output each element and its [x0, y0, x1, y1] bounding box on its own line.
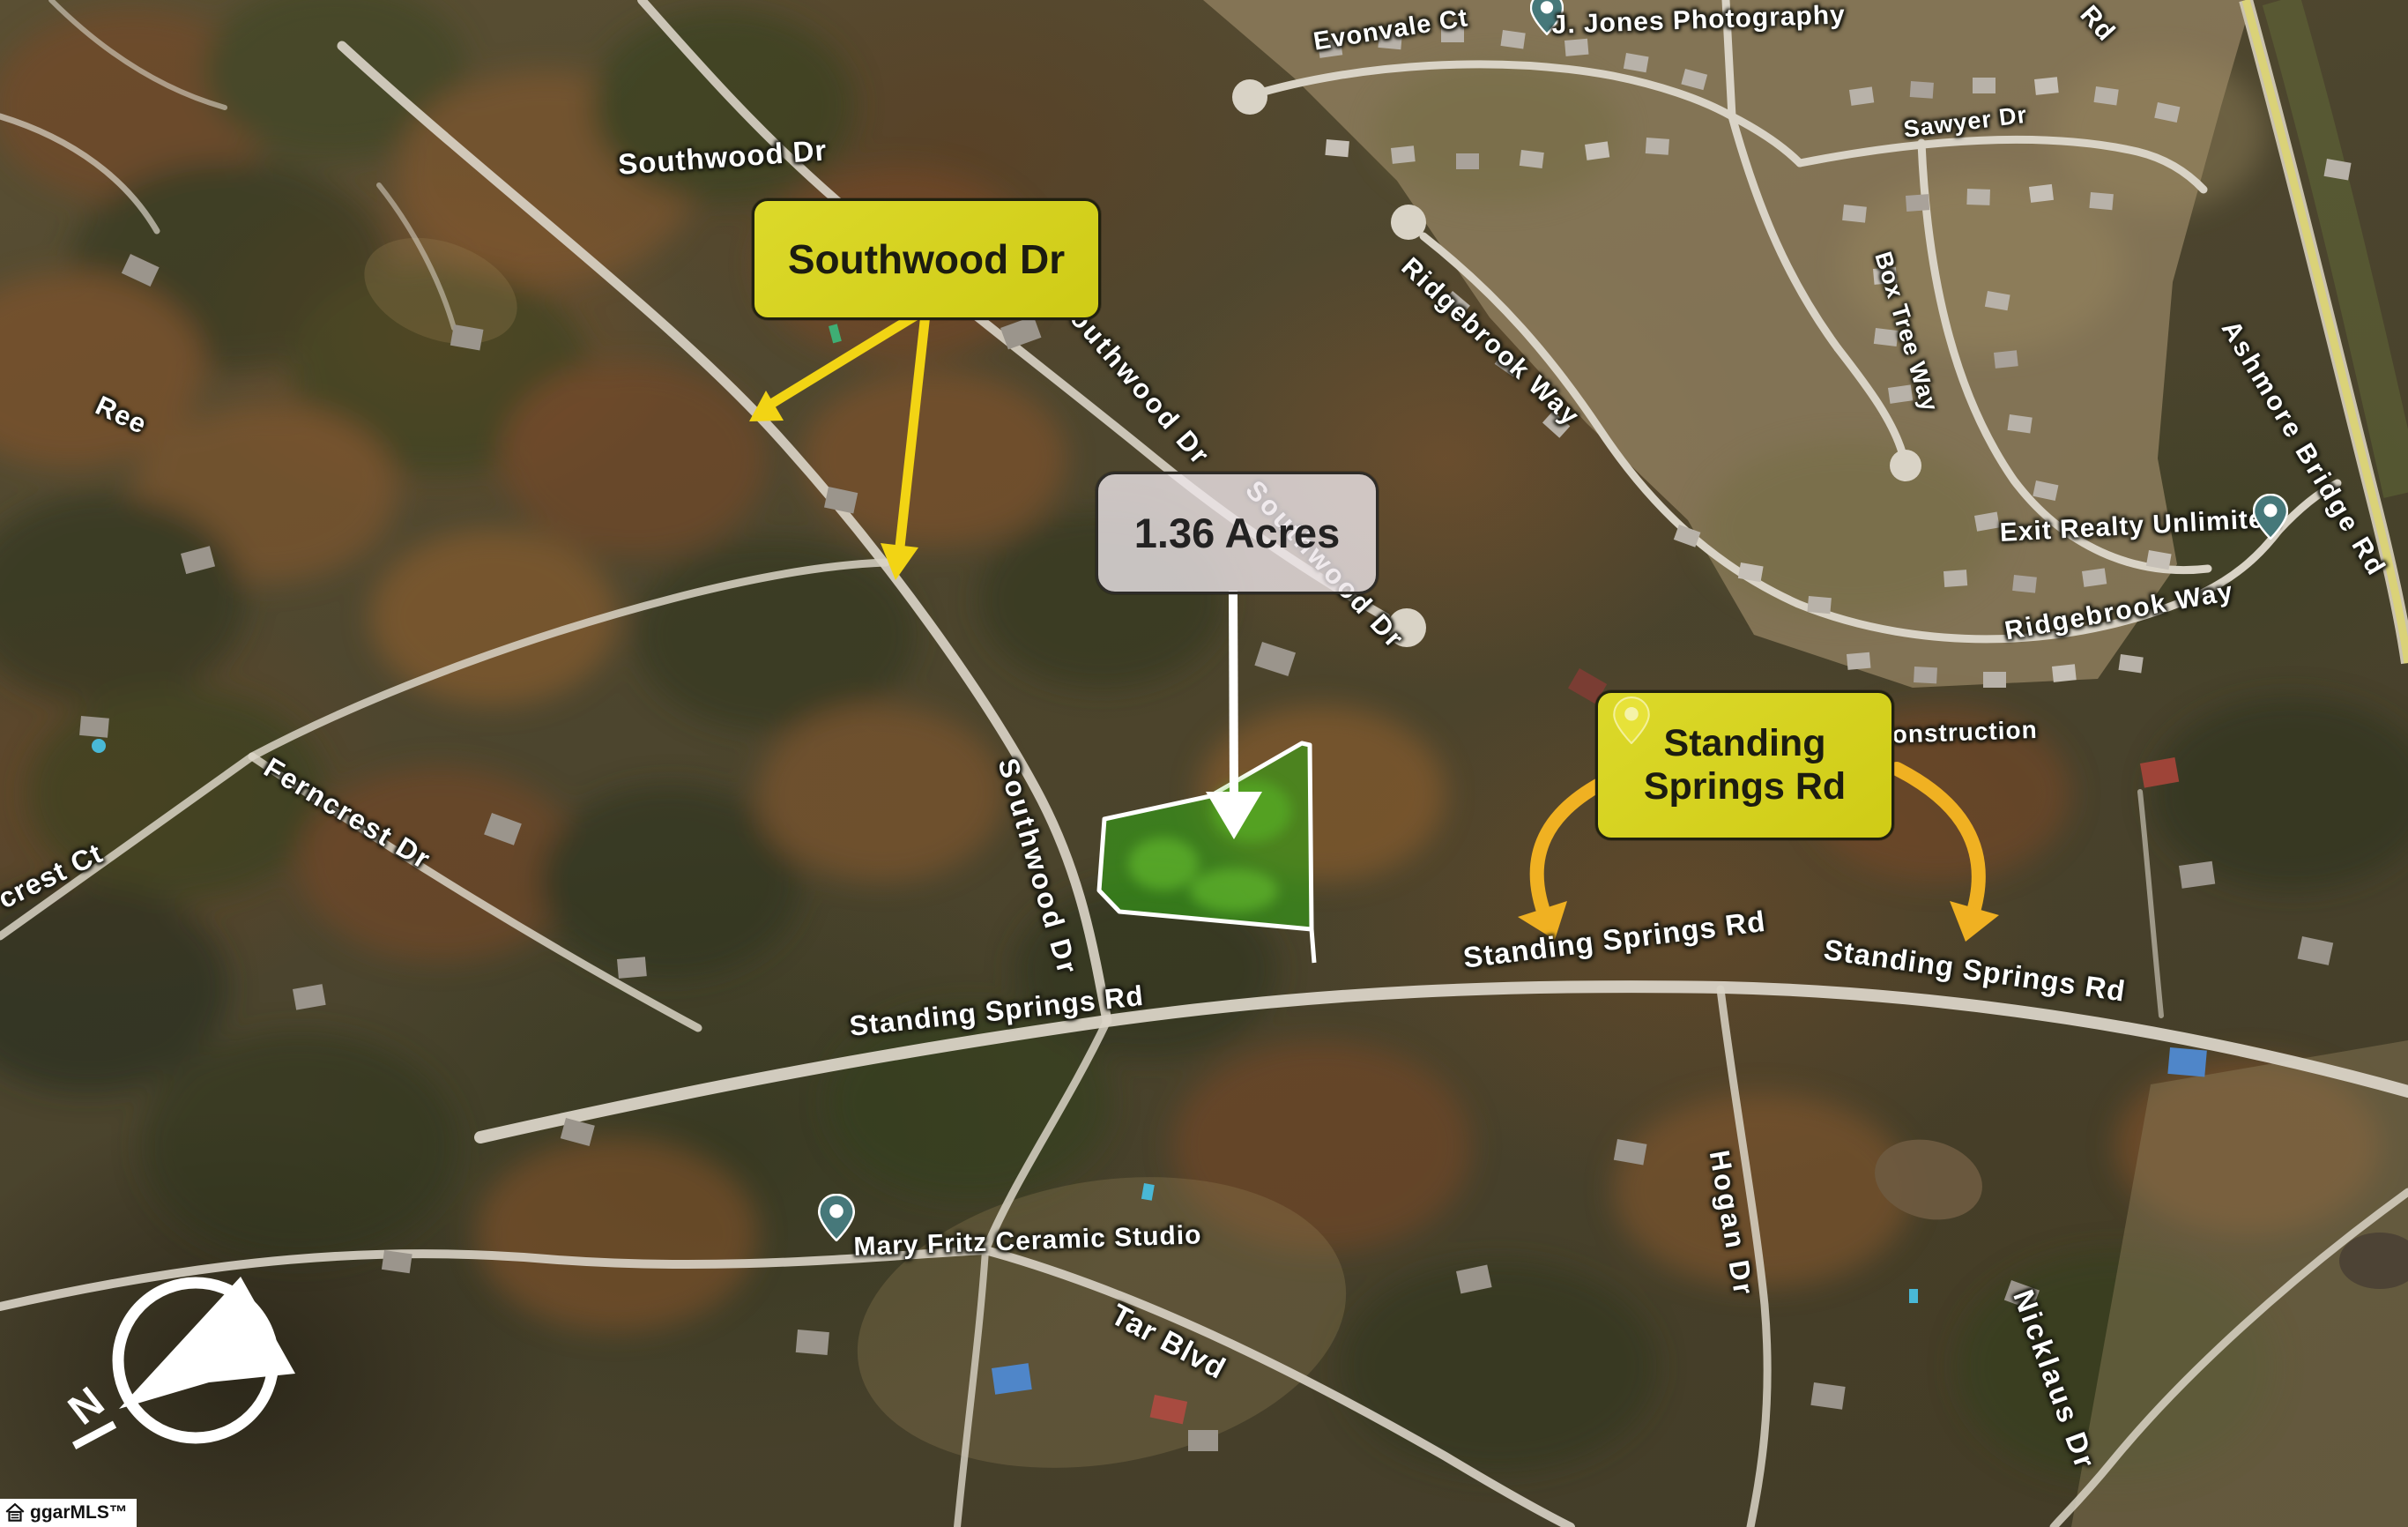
- watermark-text: ggarMLS™: [30, 1502, 128, 1523]
- compass-north-icon: N: [60, 1277, 295, 1449]
- map-pin-icon: [818, 1194, 855, 1241]
- standing-callout-line1: Standing: [1664, 722, 1826, 765]
- southwood-callout-label: Southwood Dr: [788, 235, 1065, 283]
- mls-house-logo-icon: [4, 1501, 26, 1524]
- map-pin-icon: [2253, 494, 2288, 540]
- map-pin-icon: [1613, 696, 1650, 744]
- acres-callout: 1.36 Acres: [1096, 472, 1379, 594]
- standing-callout-line2: Springs Rd: [1644, 765, 1846, 808]
- aerial-map-canvas: N: [0, 0, 2408, 1527]
- acres-callout-label: 1.36 Acres: [1134, 509, 1340, 557]
- aerial-photo-background: N Southwood Dr Southwood Dr Southwood Dr…: [0, 0, 2408, 1527]
- southwood-dr-callout: Southwood Dr: [752, 198, 1101, 320]
- watermark-logo: ggarMLS™: [0, 1499, 137, 1527]
